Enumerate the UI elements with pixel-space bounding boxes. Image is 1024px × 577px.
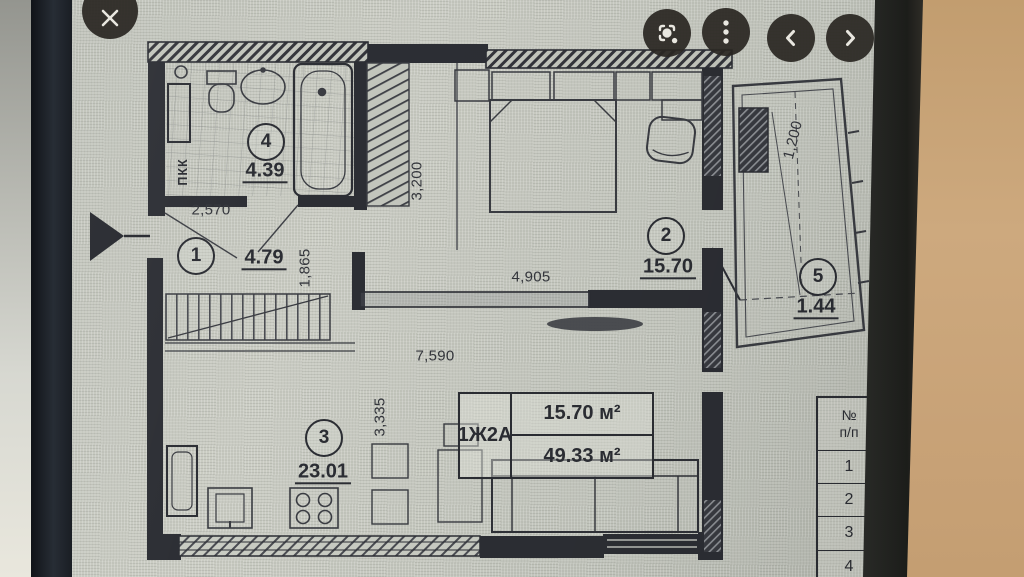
more-options-button[interactable]	[702, 8, 750, 56]
bed	[490, 100, 616, 212]
staircase	[166, 294, 330, 340]
armchair	[645, 115, 696, 164]
pillow	[554, 72, 614, 100]
kitchen-fixtures	[167, 446, 338, 528]
apartment-code: 1Ж2А	[460, 394, 512, 477]
legend-header-line2: п/п	[839, 424, 858, 442]
room-area-2: 15.70	[640, 256, 696, 279]
apartment-total-area: 49.33 м²	[512, 436, 652, 478]
wardrobe	[367, 63, 409, 206]
balcony-unit	[739, 108, 768, 172]
photographed-phone-screen: 2,570 1,865 3,200 4,905 7,590 3,335 1,20…	[0, 0, 1024, 577]
next-icon	[837, 25, 863, 51]
close-icon	[99, 7, 121, 29]
stove	[290, 488, 338, 528]
lens-search-button[interactable]	[643, 9, 691, 57]
dimension-label: 1,865	[297, 248, 314, 287]
room-number-3: 3	[305, 419, 343, 457]
radiator	[547, 317, 643, 331]
room-area-1: 4.79	[242, 247, 287, 270]
room-area-4: 4.39	[243, 160, 288, 183]
apartment-living-area: 15.70 м²	[512, 394, 652, 436]
pillow	[492, 72, 550, 100]
shaft-label: ПКК	[176, 158, 190, 185]
phone-bezel-left	[31, 0, 72, 577]
previous-image-button[interactable]	[767, 14, 815, 62]
dimension-label: 7,590	[415, 348, 454, 365]
dimension-label: 2,570	[191, 202, 230, 219]
legend-header-line1: №	[841, 407, 856, 425]
room-area-3: 23.01	[295, 461, 351, 484]
wall-pier	[704, 500, 721, 552]
next-image-button[interactable]	[826, 14, 874, 62]
wall-pier	[704, 76, 721, 176]
room-area-5: 1.44	[794, 296, 839, 319]
chair	[372, 444, 408, 478]
bedroom-furniture	[455, 70, 702, 212]
entrance-arrow-icon	[90, 212, 150, 261]
apartment-tag-table: 1Ж2А 15.70 м² 49.33 м²	[458, 392, 654, 479]
previous-icon	[778, 25, 804, 51]
wall-pier	[704, 312, 721, 368]
room-number-2: 2	[647, 217, 685, 255]
room-number-5: 5	[799, 258, 837, 296]
chair	[372, 490, 408, 524]
room-number-4: 4	[247, 123, 285, 161]
lens-search-icon	[654, 20, 680, 46]
more-options-icon	[714, 18, 738, 46]
dimension-label: 3,335	[372, 397, 389, 436]
room-number-1: 1	[177, 237, 215, 275]
dimension-label: 4,905	[511, 269, 550, 286]
dimension-label: 3,200	[409, 161, 426, 200]
background-left-surface	[0, 0, 33, 577]
